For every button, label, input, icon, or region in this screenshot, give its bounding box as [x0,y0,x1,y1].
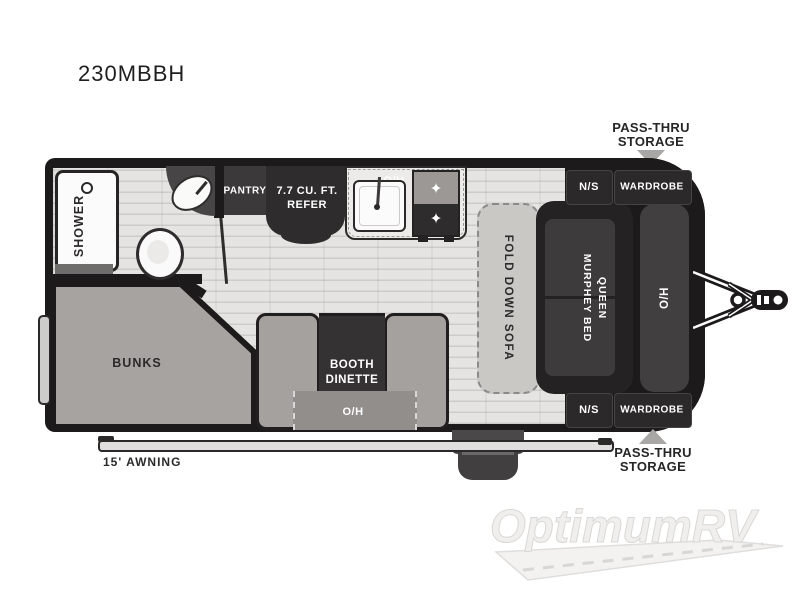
shower-drain-icon [81,182,93,194]
front-overhead-label: O/H [659,287,671,309]
pass-thru-arrow-up-icon [639,429,667,444]
watermark-text: OptimumRV [490,500,759,552]
awning-end-right [598,438,612,445]
pantry-label: PANTRY [224,186,267,197]
entry-steps-lower [458,452,518,480]
kitchen-faucet-knob [374,204,380,210]
nightstand-top-label: N/S [579,181,599,193]
bunks-label: BUNKS [112,356,161,370]
burner-icon: ✦ [430,212,443,227]
burner-icon: ✦ [430,182,443,197]
nightstand-bottom-label: N/S [579,404,599,416]
bath-wall-vertical [214,160,224,218]
page-title: 230MBBH [78,61,185,87]
bunks-area [48,279,260,431]
booth-label-line2: DINETTE [326,373,379,388]
floorplan-canvas: 230MBBH PASS-THRU STORAGE BUNKS SHOWER P… [0,0,800,600]
stove: ✦ ✦ [412,170,460,237]
pass-thru-line1: PASS-THRU [614,446,692,460]
pass-thru-line1: PASS-THRU [612,121,690,135]
entry-steps-tread [462,452,514,455]
booth-label-line1: BOOTH [326,358,379,373]
murphy-bed-label: QUEEN MURPHEY BED [579,254,609,342]
pass-thru-line2: STORAGE [612,135,690,149]
watermark-logo: OptimumRV [478,488,798,592]
pass-thru-line2: STORAGE [614,460,692,474]
wardrobe-top-label: WARDROBE [620,182,683,193]
refer-label-line1: 7.7 CU. FT. [276,184,337,198]
bath-wall-horizontal [53,274,202,284]
pass-thru-callout-top: PASS-THRU STORAGE [612,121,690,149]
awning-end-left [98,436,114,442]
shower-base [55,264,113,274]
stove-foot [418,237,428,242]
pass-thru-callout-bottom: PASS-THRU STORAGE [614,446,692,474]
fold-down-sofa-label: FOLD DOWN SOFA [502,235,514,361]
refer-label: 7.7 CU. FT. REFER [276,184,337,212]
refrigerator-door-curve [281,226,331,244]
murphy-label-line1: QUEEN [594,254,609,342]
dinette-overhead-label: O/H [342,406,363,418]
murphy-label-line2: MURPHEY BED [579,254,594,342]
toilet-lid [147,240,169,264]
hitch-graphic [693,256,793,344]
wardrobe-bottom-label: WARDROBE [620,405,683,416]
booth-dinette-label: BOOTH DINETTE [326,358,379,388]
awning-label: 15' AWNING [103,455,181,469]
awning-bar [98,440,614,452]
shower-label: SHOWER [72,195,86,257]
stove-foot [444,237,454,242]
refer-label-line2: REFER [276,198,337,212]
